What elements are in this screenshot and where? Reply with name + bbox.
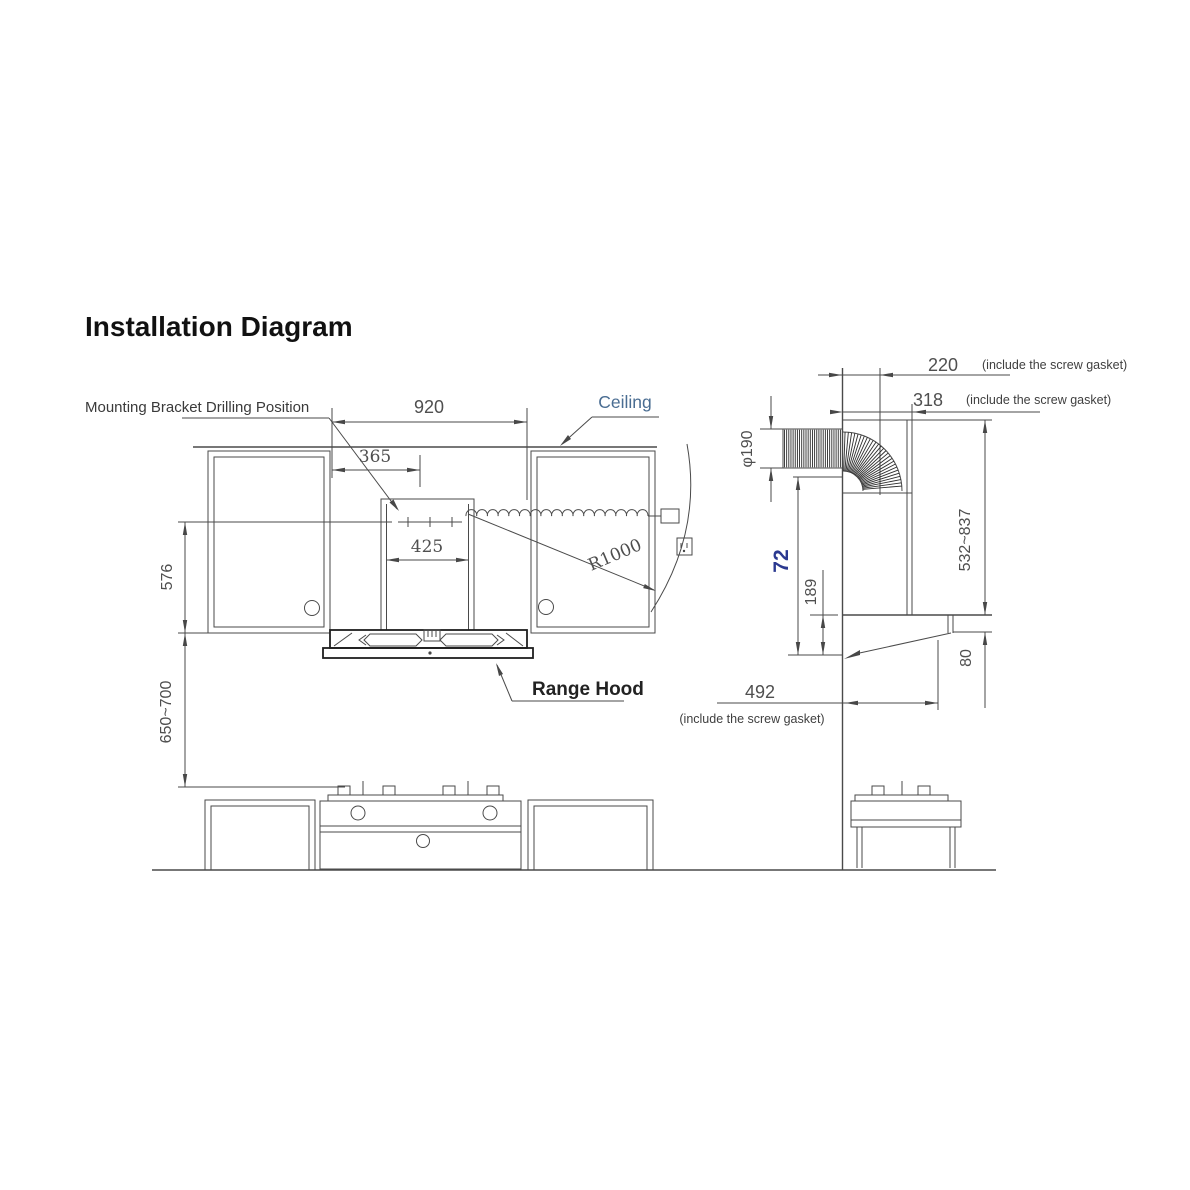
range-hood-front xyxy=(323,630,533,658)
dim-576: 576 xyxy=(159,564,176,591)
dim-72: 72 xyxy=(770,549,793,572)
dim-920: 920 xyxy=(414,397,444,417)
cord-coil xyxy=(466,510,648,516)
duct-corrugation xyxy=(785,430,841,468)
cabinet-knob xyxy=(539,600,554,615)
left-wall-cabinet xyxy=(208,451,330,633)
mounting-bracket-label: Mounting Bracket Drilling Position xyxy=(85,399,309,416)
power-plug xyxy=(661,509,679,523)
side-dimensions: 220 (include the screw gasket) 318 (incl… xyxy=(679,355,1127,726)
wall-outlet xyxy=(677,538,692,555)
side-section-view: 220 (include the screw gasket) 318 (incl… xyxy=(679,355,1127,870)
dim-phi190: φ190 xyxy=(739,430,756,467)
dim-220-note: (include the screw gasket) xyxy=(982,358,1127,372)
hood-chimney-front xyxy=(381,499,474,630)
dim-220: 220 xyxy=(928,355,958,375)
dim-318: 318 xyxy=(913,390,943,410)
burner-knob xyxy=(351,806,365,820)
dim-r1000: R1000 xyxy=(585,535,644,575)
page-title: Installation Diagram xyxy=(85,311,353,342)
cabinet-knob xyxy=(305,601,320,616)
dim-318-note: (include the screw gasket) xyxy=(966,393,1111,407)
drilling-position-line xyxy=(178,517,462,527)
base-cabinets-front xyxy=(205,800,653,870)
cooktop-side xyxy=(851,781,961,868)
dim-492-note: (include the screw gasket) xyxy=(679,712,824,726)
dim-650-700: 650~700 xyxy=(158,681,175,744)
installation-diagram-page: Installation Diagram xyxy=(0,0,1190,1190)
power-cord xyxy=(466,444,692,612)
front-labels: Mounting Bracket Drilling Position Ceili… xyxy=(85,392,659,701)
ceiling-label: Ceiling xyxy=(598,392,652,412)
burner-knob xyxy=(483,806,497,820)
dim-189: 189 xyxy=(803,579,820,606)
cooktop-front xyxy=(320,781,521,869)
range-hood-label: Range Hood xyxy=(532,679,644,700)
dim-80: 80 xyxy=(958,649,975,667)
dim-492: 492 xyxy=(745,682,775,702)
installation-diagram: Installation Diagram xyxy=(0,0,1190,1190)
cord-reach-arc xyxy=(651,444,691,612)
duct-elbow xyxy=(843,432,902,491)
dim-425: 425 xyxy=(411,537,443,557)
dim-532-837: 532~837 xyxy=(957,509,974,572)
drawer-knob xyxy=(417,835,430,848)
front-dimensions: 920 365 425 576 650~700 xyxy=(158,397,656,787)
